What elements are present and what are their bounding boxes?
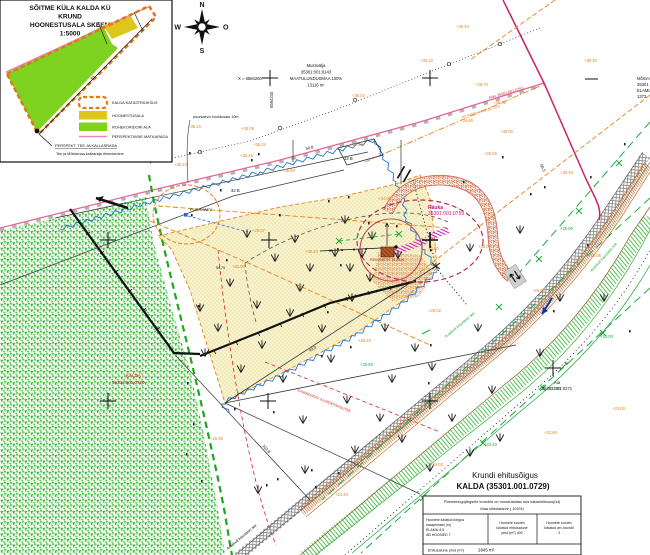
svg-text:1:5000: 1:5000 (60, 31, 81, 38)
svg-text:S: S (200, 48, 205, 55)
svg-text:+25.60: +25.60 (360, 362, 374, 367)
svg-text:Mõmm: Mõmm (637, 76, 650, 81)
svg-text:+25.60: +25.60 (210, 436, 224, 441)
svg-text:X = 6584260: X = 6584260 (238, 76, 263, 81)
svg-text:PERSPEKT. TEE JA KALLASRADA: PERSPEKT. TEE JA KALLASRADA (55, 143, 117, 148)
svg-text:+24.00: +24.00 (600, 334, 614, 339)
svg-text:Hoonete lubatud kõrgus: Hoonete lubatud kõrgus (426, 518, 464, 522)
svg-text:MAATULUNDUSMAA 100%: MAATULUNDUSMAA 100% (290, 76, 343, 81)
svg-text:+0.80: +0.80 (428, 246, 439, 251)
svg-text:AB HOONED 7: AB HOONED 7 (426, 533, 451, 537)
svg-text:+28.00: +28.00 (478, 244, 492, 249)
svg-text:KRUND: KRUND (58, 14, 82, 21)
svg-text:13116 m²: 13116 m² (307, 83, 325, 88)
svg-text:35301:001:0720: 35301:001:0720 (112, 380, 145, 385)
svg-text:Ehitusalune pind (m²): Ehitusalune pind (m²) (428, 549, 465, 553)
svg-text:O: O (223, 25, 229, 32)
svg-text:+26.02: +26.02 (428, 308, 442, 313)
svg-text:PUURKAEV: PUURKAEV (190, 207, 212, 212)
svg-text:+36.24: +36.24 (253, 142, 267, 147)
svg-text:+35.10: +35.10 (174, 162, 188, 167)
svg-text:lubatud ehitusalune: lubatud ehitusalune (496, 526, 527, 530)
svg-text:N: N (199, 2, 204, 9)
svg-text:KALDA: KALDA (126, 373, 141, 378)
svg-text:Krundi ehitusõigus: Krundi ehitusõigus (472, 471, 538, 480)
svg-text:maapinnast (m): maapinnast (m) (426, 523, 451, 527)
svg-text:ELAMU: ELAMU (637, 88, 650, 93)
svg-text:+26.06: +26.06 (588, 253, 602, 258)
svg-text:3: 3 (558, 531, 560, 535)
svg-text:32 B: 32 B (344, 156, 353, 161)
svg-text:+35.70: +35.70 (475, 82, 489, 87)
svg-text:+35.98: +35.98 (493, 100, 507, 105)
svg-text:+36.09: +36.09 (241, 126, 255, 131)
svg-text:+30.40: +30.40 (560, 170, 574, 175)
svg-text:+34.60: +34.60 (460, 118, 474, 123)
svg-text:puurkaevu hooldusala 10m: puurkaevu hooldusala 10m (193, 115, 239, 119)
svg-text:HOONESTUSALA: HOONESTUSALA (112, 113, 144, 118)
svg-text:SÕITME KÜLA KALDA KÜ: SÕITME KÜLA KALDA KÜ (29, 3, 110, 12)
svg-text:54.75: 54.75 (216, 266, 225, 270)
svg-text:KALDA (35301.001.0729): KALDA (35301.001.0729) (456, 482, 549, 491)
svg-text:+36.10: +36.10 (188, 124, 202, 129)
svg-text:+23.00: +23.00 (612, 406, 626, 411)
svg-text:+31.00: +31.00 (232, 264, 246, 269)
svg-text:+26.00: +26.00 (532, 288, 546, 293)
svg-text:+23.40: +23.40 (484, 442, 498, 447)
svg-text:+35.60: +35.60 (282, 168, 296, 173)
svg-text:+34.06: +34.06 (378, 196, 392, 201)
svg-text:REKONSTR. ELAMU: REKONSTR. ELAMU (370, 258, 405, 262)
svg-text:KALDA KATASTRIÜKSUS: KALDA KATASTRIÜKSUS (112, 100, 158, 105)
svg-text:6594240: 6594240 (269, 91, 274, 108)
svg-text:+36.10: +36.10 (420, 58, 434, 63)
svg-text:35301:001:0271: 35301:001:0271 (542, 386, 573, 391)
svg-text:+35.48: +35.48 (240, 153, 254, 158)
svg-text:+22.60: +22.60 (544, 430, 558, 435)
svg-text:+30.00: +30.00 (500, 129, 514, 134)
svg-text:+36.40: +36.40 (456, 24, 470, 29)
svg-text:+30.40: +30.40 (305, 249, 319, 254)
svg-text:+25.66: +25.66 (484, 151, 498, 156)
svg-text:+35.46: +35.46 (350, 142, 364, 147)
svg-text:Maa sihtotstarve ( 100%): Maa sihtotstarve ( 100%) (480, 506, 524, 511)
svg-text:35301:001:0759: 35301:001:0759 (428, 211, 464, 217)
svg-text:ELAMU 8,5: ELAMU 8,5 (426, 528, 444, 532)
svg-text:pind (m²) 400: pind (m²) 400 (501, 531, 522, 535)
svg-text:+36.02: +36.02 (352, 93, 366, 98)
svg-text:Planeeringujärgsele krundile o: Planeeringujärgsele krundile on moodusta… (444, 499, 561, 504)
svg-text:ROHEKORIDORI ALA: ROHEKORIDORI ALA (112, 125, 151, 130)
svg-text:35301:001:0143: 35301:001:0143 (301, 70, 332, 75)
svg-text:+29.07: +29.07 (252, 228, 266, 233)
svg-text:+25.00: +25.00 (560, 226, 574, 231)
svg-text:2845 m²: 2845 m² (478, 548, 495, 553)
svg-text:Aia: Aia (554, 380, 561, 385)
svg-text:+24.40: +24.40 (335, 492, 349, 497)
svg-text:Hoonete suurim: Hoonete suurim (546, 521, 571, 525)
svg-text:1373: 1373 (637, 94, 647, 99)
svg-text:lubatud arv krundil: lubatud arv krundil (544, 526, 574, 530)
svg-text:Mustivälja: Mustivälja (307, 63, 326, 68)
svg-text:+26.40: +26.40 (358, 338, 372, 343)
svg-text:+36.20: +36.20 (584, 58, 598, 63)
svg-text:PERSPEKTIIVNE MATKARADA: PERSPEKTIIVNE MATKARADA (112, 134, 168, 139)
svg-text:+24.02: +24.02 (430, 462, 444, 467)
svg-text:35301: 35301 (637, 82, 649, 87)
svg-text:Hoonete suurim: Hoonete suurim (499, 521, 524, 525)
svg-text:Tee ja Mõisamaa kallasraja ühe: Tee ja Mõisamaa kallasraja ühendamine (56, 152, 124, 156)
svg-text:32 B: 32 B (231, 188, 240, 193)
svg-text:W: W (174, 25, 181, 32)
